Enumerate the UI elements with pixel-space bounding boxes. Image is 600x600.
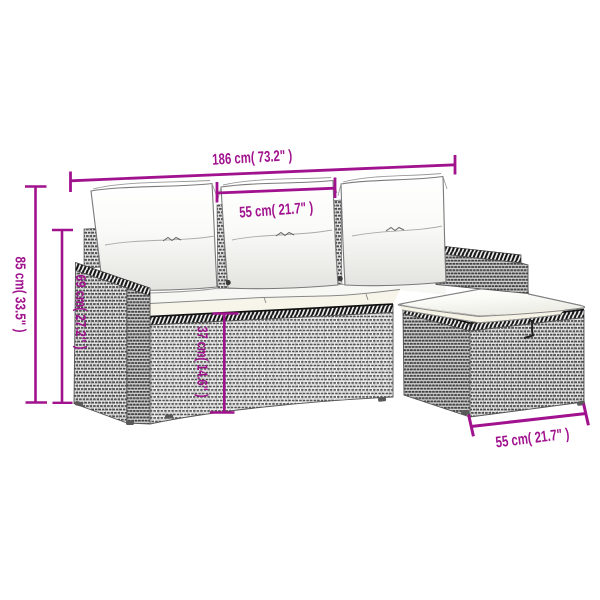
svg-text:85 cm( 33.5" ): 85 cm( 33.5" ) bbox=[12, 257, 29, 333]
svg-text:69 cm( 27.2" ): 69 cm( 27.2" ) bbox=[72, 275, 89, 350]
svg-text:37 cm( 14.6" ): 37 cm( 14.6" ) bbox=[194, 327, 211, 398]
